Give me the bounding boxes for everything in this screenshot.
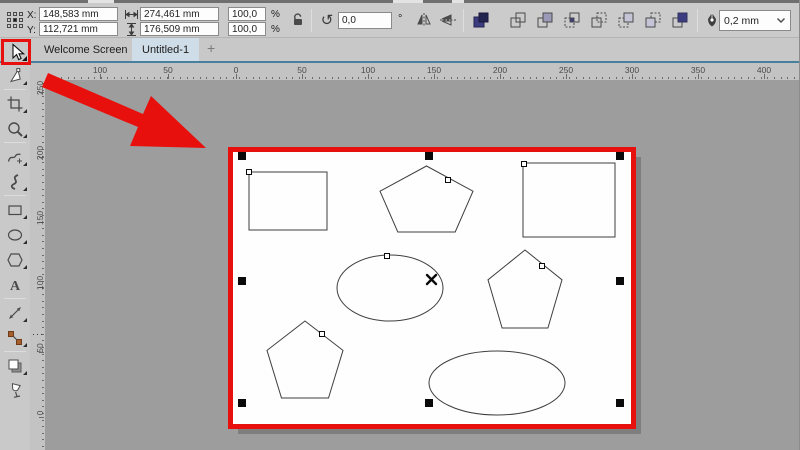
new-tab-button[interactable]: + (207, 40, 215, 56)
svg-text:A: A (10, 279, 21, 294)
connector-tool[interactable] (0, 325, 30, 350)
ellipse-tool[interactable] (0, 222, 30, 247)
h-ruler-label: 250 (559, 65, 573, 75)
horizontal-ruler[interactable]: 10050050100150200250300350400 (45, 63, 800, 80)
intersect-icon[interactable] (562, 10, 582, 30)
object-node-marker[interactable] (522, 162, 527, 167)
document-tab-bar: Welcome Screen Untitled-1 + (0, 38, 800, 61)
polygon-icon (6, 251, 24, 269)
ellipse-shape[interactable] (337, 255, 443, 321)
combine-icon[interactable] (471, 10, 491, 30)
mirror-horizontal-icon[interactable] (414, 10, 434, 30)
artistic-media-tool[interactable] (0, 169, 30, 194)
object-node-marker[interactable] (446, 178, 451, 183)
rect-shape[interactable] (523, 163, 615, 237)
ruler-corner (30, 63, 45, 80)
h-ruler-label: 50 (297, 65, 306, 75)
tab-untitled-1[interactable]: Untitled-1 (132, 38, 199, 61)
ruler-overflow-dots: ··· (32, 329, 44, 339)
h-ruler-label: 0 (234, 65, 239, 75)
object-node-marker[interactable] (247, 170, 252, 175)
toolbox-separator (4, 89, 26, 90)
toolbox-separator (4, 298, 26, 299)
shape-icon (6, 67, 24, 85)
ellipse-shape[interactable] (429, 351, 565, 415)
percent-label-2: % (271, 24, 280, 35)
selection-handle[interactable] (238, 399, 246, 407)
scale-horizontal-field[interactable] (228, 7, 266, 21)
v-ruler-label: 100 (35, 274, 45, 292)
simplify-icon[interactable] (589, 10, 609, 30)
rotate-icon: ↺ (317, 10, 337, 30)
x-label: X: (27, 10, 36, 21)
toolbox-separator (4, 142, 26, 143)
polygon-tool[interactable] (0, 247, 30, 272)
connector-icon (6, 329, 24, 347)
object-node-marker[interactable] (320, 332, 325, 337)
tab-welcome-screen[interactable]: Welcome Screen (34, 38, 138, 61)
text-icon: A (6, 276, 24, 294)
trim-icon[interactable] (535, 10, 555, 30)
weld-icon[interactable] (508, 10, 528, 30)
x-position-field[interactable] (39, 7, 118, 21)
object-height-field[interactable] (140, 22, 219, 36)
h-ruler-label: 100 (93, 65, 107, 75)
chevron-down-icon (776, 17, 786, 24)
h-ruler-label: 150 (427, 65, 441, 75)
front-minus-back-icon[interactable] (616, 10, 636, 30)
y-position-field[interactable] (39, 22, 118, 36)
rect-shape[interactable] (249, 172, 327, 230)
scale-vertical-field[interactable] (228, 22, 266, 36)
toolbox-separator (4, 351, 26, 352)
outline-width-select[interactable]: 0,2 mm (719, 10, 791, 31)
toolbox: A (0, 63, 30, 450)
coreldraw-window: X: Y: % % ↺ ° (0, 0, 800, 450)
mirror-vertical-icon[interactable] (438, 10, 458, 30)
lock-ratio-icon[interactable] (288, 10, 308, 30)
crop-tool[interactable] (0, 91, 30, 116)
selection-handle[interactable] (425, 399, 433, 407)
rectangle-icon (6, 201, 24, 219)
object-node-marker[interactable] (385, 254, 390, 259)
v-ruler-label: 200 (35, 144, 45, 162)
dimension-tool[interactable] (0, 300, 30, 325)
toolbox-separator (4, 195, 26, 196)
text-tool[interactable]: A (0, 272, 30, 297)
zoom-tool[interactable] (0, 116, 30, 141)
h-ruler-label: 50 (163, 65, 172, 75)
vertical-ruler[interactable]: 250200150100500··· (30, 80, 45, 450)
freehand-tool[interactable] (0, 144, 30, 169)
pick-tool-cursor-icon (8, 43, 25, 62)
transparency-icon (6, 382, 24, 400)
h-ruler-label: 300 (625, 65, 639, 75)
drop-shadow-icon (6, 357, 24, 375)
property-bar: X: Y: % % ↺ ° (0, 3, 800, 38)
object-node-marker[interactable] (540, 264, 545, 269)
rotation-angle-field[interactable] (338, 12, 392, 29)
pick-tool-button-highlighted[interactable] (1, 39, 31, 65)
rectangle-tool[interactable] (0, 197, 30, 222)
h-ruler-label: 400 (757, 65, 771, 75)
outline-width-value: 0,2 mm (724, 15, 759, 27)
shape-tool[interactable] (0, 63, 30, 88)
back-minus-front-icon[interactable] (643, 10, 663, 30)
canvas-area[interactable] (45, 80, 800, 450)
selection-handle[interactable] (238, 277, 246, 285)
v-ruler-label: 0 (35, 404, 45, 422)
object-width-field[interactable] (140, 7, 219, 21)
transparency-tool[interactable] (0, 378, 30, 403)
h-ruler-label: 350 (691, 65, 705, 75)
drop-shadow-tool[interactable] (0, 353, 30, 378)
selection-handle[interactable] (616, 277, 624, 285)
dimension-icon (6, 304, 24, 322)
object-origin-icon[interactable] (5, 10, 25, 30)
object-height-icon (124, 19, 138, 39)
v-ruler-label: 150 (35, 209, 45, 227)
degree-label: ° (398, 13, 402, 25)
create-boundary-icon[interactable] (670, 10, 690, 30)
v-ruler-label: 50 (35, 339, 45, 357)
selection-handle[interactable] (238, 152, 246, 160)
h-ruler-label: 200 (493, 65, 507, 75)
crop-icon (6, 95, 24, 113)
artistic-media-icon (6, 173, 24, 191)
v-ruler-label: 250 (35, 80, 45, 97)
selection-handle[interactable] (425, 152, 433, 160)
selection-handle[interactable] (616, 399, 624, 407)
zoom-icon (6, 120, 24, 138)
freehand-icon (6, 148, 24, 166)
percent-label-1: % (271, 9, 280, 20)
y-label: Y: (27, 25, 36, 36)
selection-handle[interactable] (616, 152, 624, 160)
h-ruler-label: 100 (361, 65, 375, 75)
ellipse-icon (6, 226, 24, 244)
